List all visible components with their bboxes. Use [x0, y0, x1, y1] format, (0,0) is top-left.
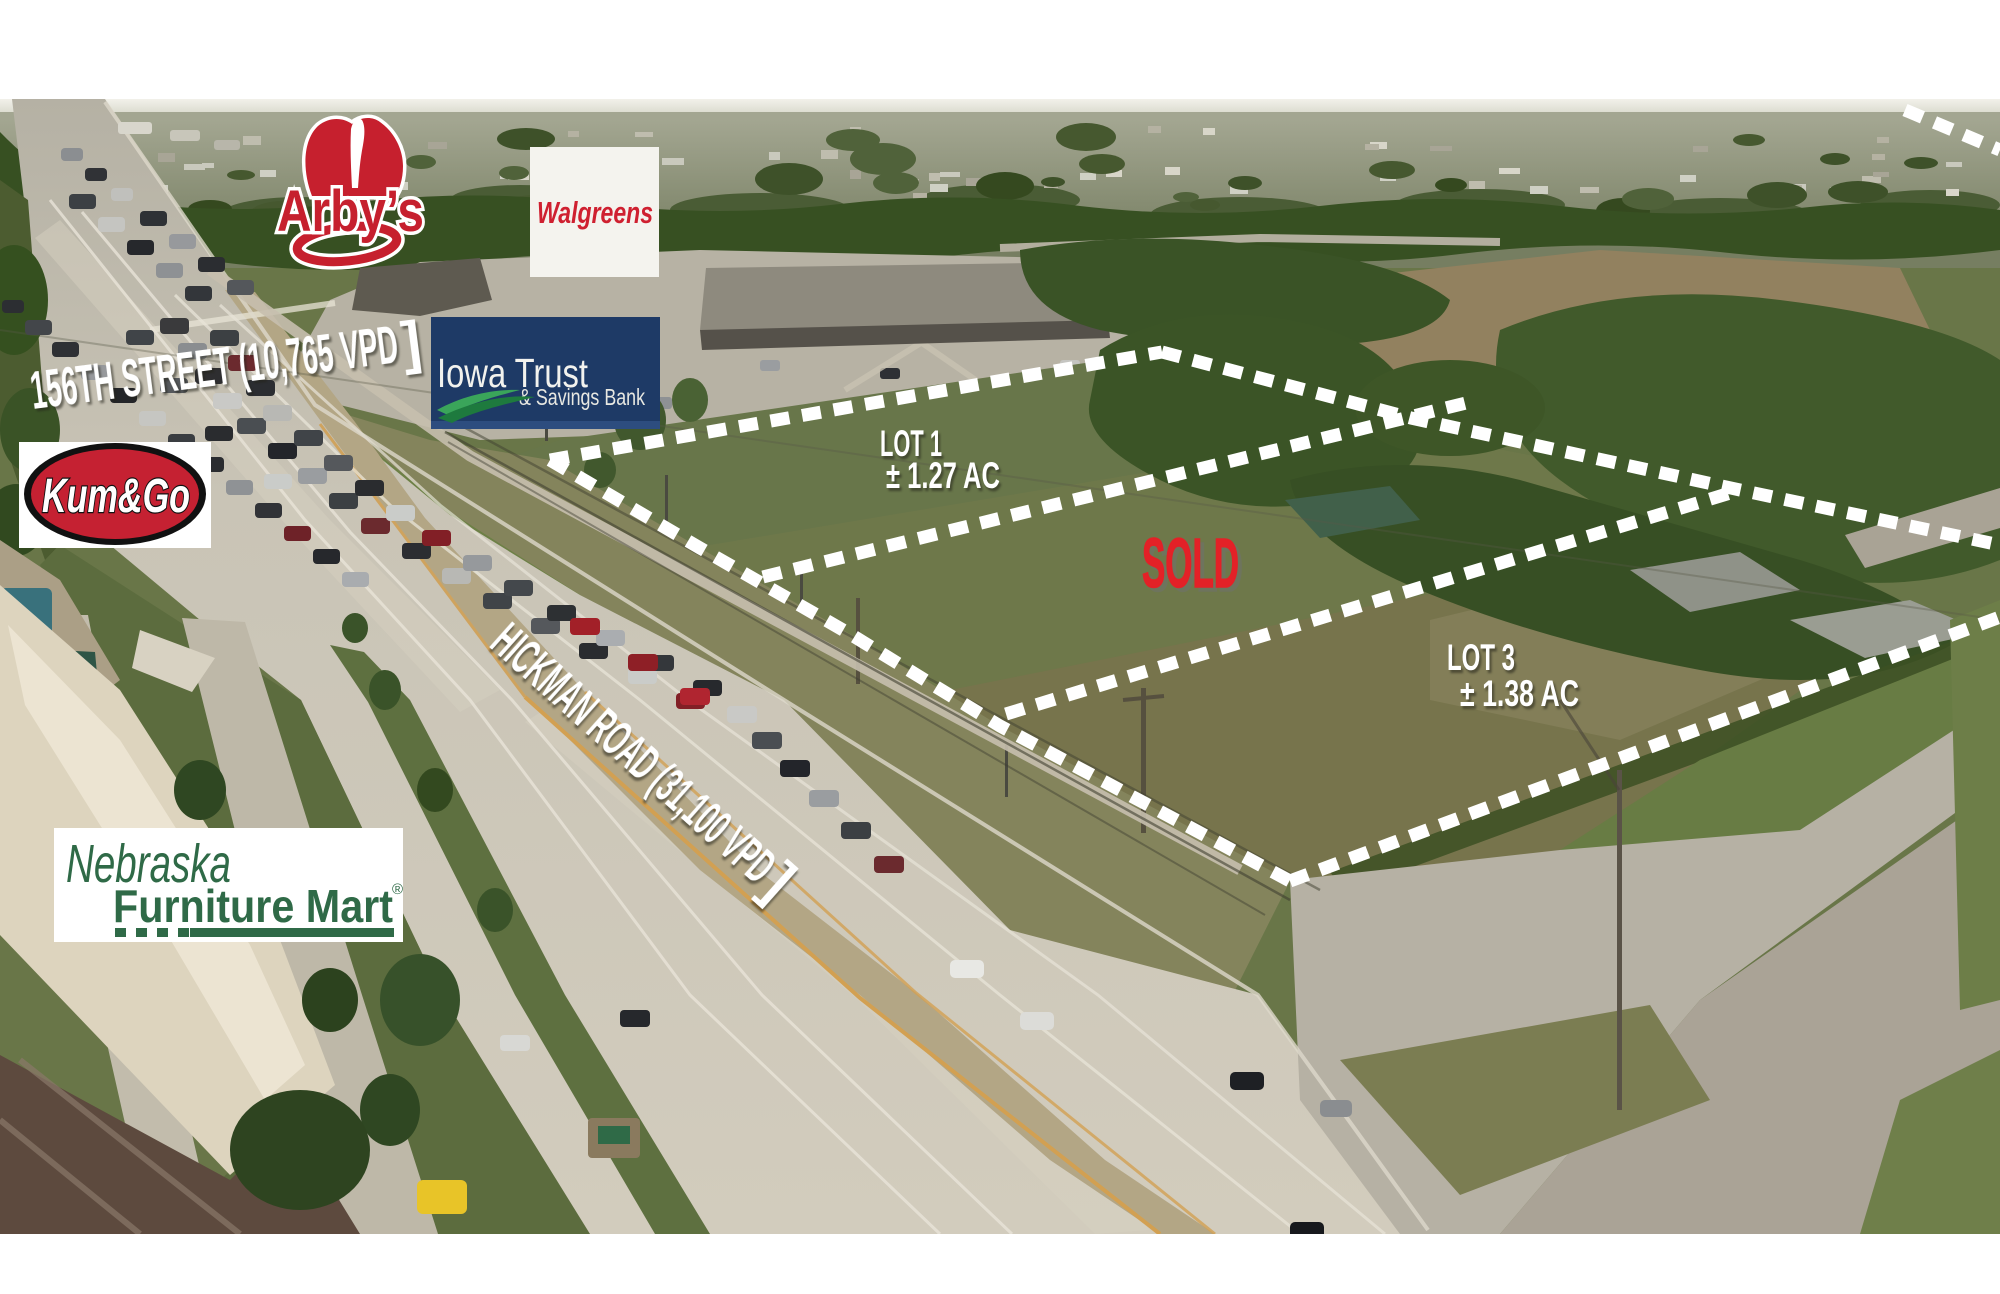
svg-text:Arby’s: Arby’s: [277, 179, 424, 244]
svg-text:Kum&Go: Kum&Go: [42, 470, 190, 523]
svg-text:± 1.38 AC: ± 1.38 AC: [1460, 673, 1579, 714]
svg-text:®: ®: [392, 881, 403, 898]
svg-text:SOLD: SOLD: [1142, 524, 1239, 602]
svg-text:Walgreens: Walgreens: [537, 195, 653, 230]
svg-text:& Savings Bank: & Savings Bank: [519, 384, 645, 410]
svg-text:Furniture Mart: Furniture Mart: [113, 880, 393, 932]
svg-text:LOT 3: LOT 3: [1447, 637, 1515, 678]
svg-text:± 1.27 AC: ± 1.27 AC: [886, 455, 1000, 496]
